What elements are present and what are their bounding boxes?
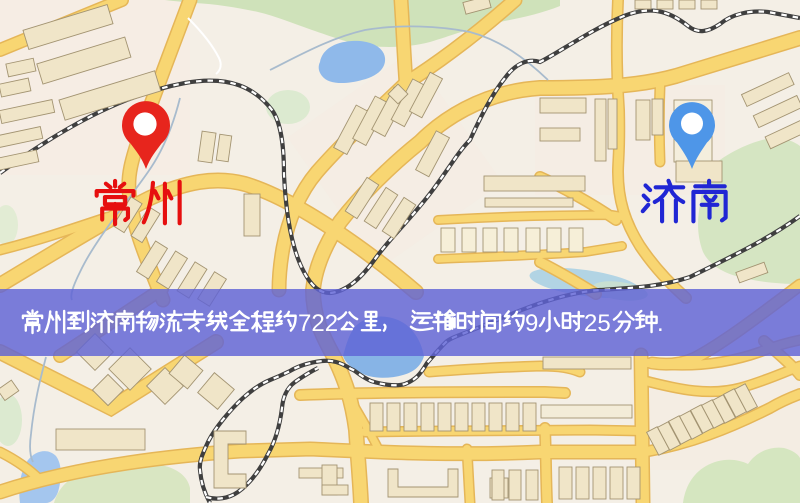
svg-text:25: 25 [584, 310, 611, 337]
svg-text:9: 9 [525, 310, 538, 337]
svg-text:.: . [657, 310, 664, 337]
svg-text:722: 722 [298, 310, 338, 337]
